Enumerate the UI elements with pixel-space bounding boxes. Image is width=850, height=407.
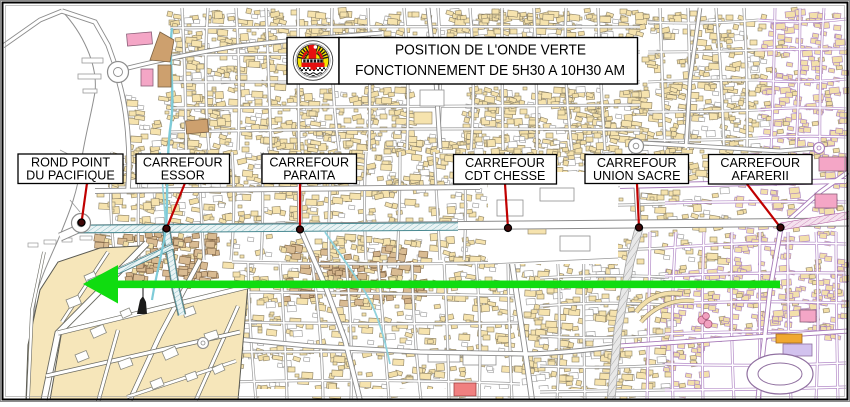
- svg-text:CARREFOUR: CARREFOUR: [720, 156, 800, 170]
- svg-text:ROND POINT: ROND POINT: [31, 155, 110, 169]
- svg-text:ESSOR: ESSOR: [161, 168, 205, 182]
- svg-text:CDT CHESSE: CDT CHESSE: [465, 169, 546, 183]
- svg-text:CARREFOUR: CARREFOUR: [597, 156, 677, 170]
- svg-text:UNION SACRE: UNION SACRE: [593, 169, 680, 183]
- svg-text:CARREFOUR: CARREFOUR: [465, 156, 545, 170]
- svg-text:POSITION DE L'ONDE VERTE: POSITION DE L'ONDE VERTE: [395, 42, 586, 59]
- svg-text:CARREFOUR: CARREFOUR: [143, 155, 223, 169]
- svg-text:FONCTIONNEMENT DE 5H30 A 10H30: FONCTIONNEMENT DE 5H30 A 10H30 AM: [355, 62, 625, 79]
- svg-text:CARREFOUR: CARREFOUR: [269, 155, 349, 169]
- svg-text:DU PACIFIQUE: DU PACIFIQUE: [26, 168, 115, 182]
- svg-text:PARAITA: PARAITA: [283, 168, 336, 182]
- svg-text:AFARERII: AFARERII: [732, 169, 789, 183]
